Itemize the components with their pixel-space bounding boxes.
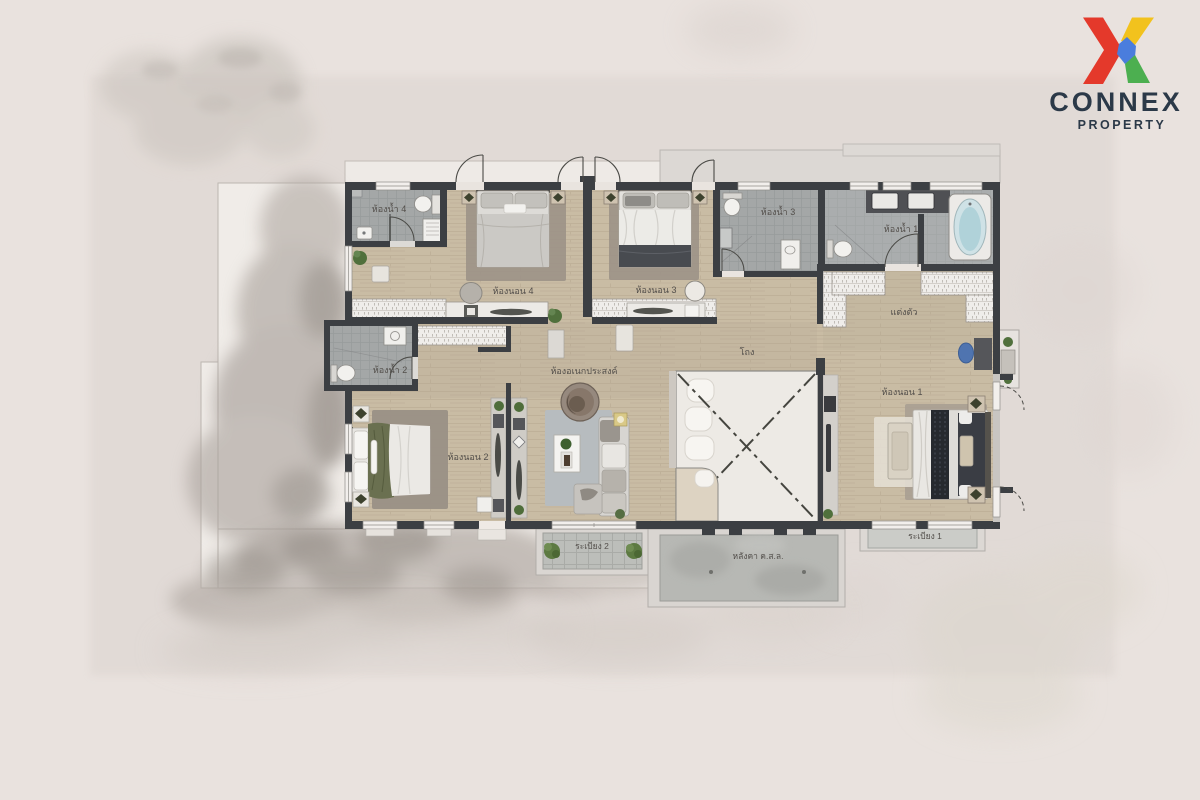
- svg-text:ห้องนอน 3: ห้องนอน 3: [636, 285, 677, 295]
- svg-text:ห้องน้ำ 4: ห้องน้ำ 4: [372, 202, 406, 214]
- svg-text:หลังคา ค.ส.ล.: หลังคา ค.ส.ล.: [733, 551, 784, 561]
- svg-text:โถง: โถง: [740, 347, 755, 357]
- svg-text:ห้องน้ำ 3: ห้องน้ำ 3: [761, 205, 795, 217]
- svg-text:ระเบียง 1: ระเบียง 1: [908, 531, 942, 541]
- svg-text:ระเบียง 2: ระเบียง 2: [575, 541, 609, 551]
- svg-text:CONNEX: CONNEX: [1049, 87, 1183, 117]
- svg-text:PROPERTY: PROPERTY: [1078, 118, 1167, 132]
- svg-text:ห้องนอน 4: ห้องนอน 4: [493, 286, 534, 296]
- svg-text:ห้องนอน 2: ห้องนอน 2: [448, 452, 489, 462]
- svg-text:ห้องน้ำ 2: ห้องน้ำ 2: [373, 363, 407, 375]
- svg-text:แต่งตัว: แต่งตัว: [891, 307, 918, 317]
- svg-text:ห้องนอน 1: ห้องนอน 1: [882, 387, 923, 397]
- svg-text:ห้องน้ำ 1: ห้องน้ำ 1: [884, 222, 918, 234]
- svg-text:ห้องอเนกประสงค์: ห้องอเนกประสงค์: [550, 365, 617, 376]
